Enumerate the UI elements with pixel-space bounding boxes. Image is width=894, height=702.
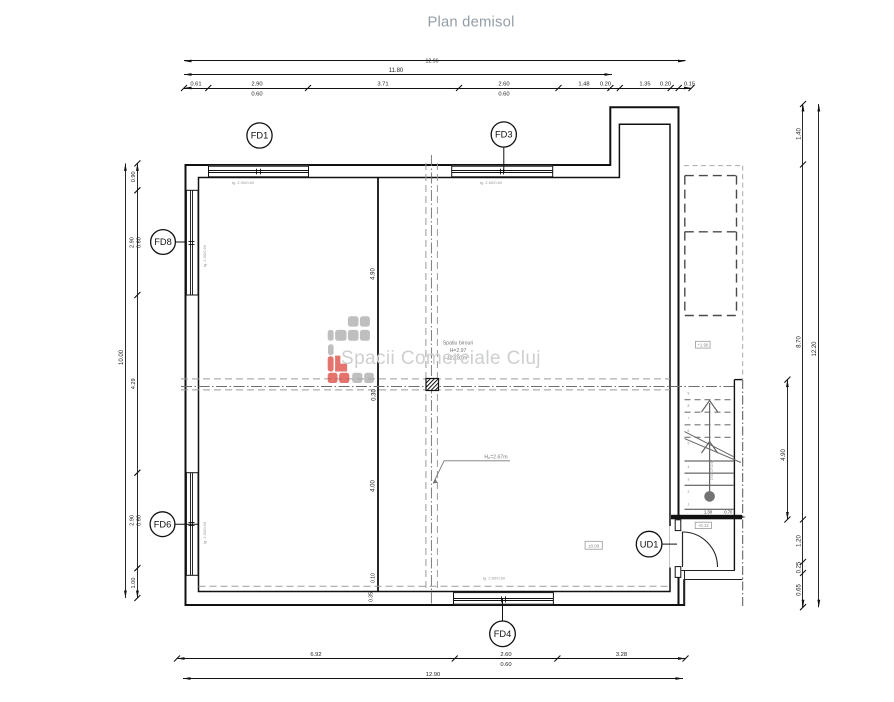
svg-text:tg. 2.60/0.60: tg. 2.60/0.60 [483,576,506,581]
svg-text:0.15: 0.15 [684,82,695,88]
svg-text:0.20: 0.20 [600,82,611,88]
svg-text:0.30: 0.30 [372,389,378,401]
svg-text:1.40: 1.40 [796,128,802,140]
svg-text:2.90: 2.90 [129,515,135,526]
svg-text:0.90: 0.90 [131,171,137,182]
svg-text:2.60: 2.60 [498,82,509,88]
svg-text:0.35: 0.35 [369,592,375,602]
svg-text:Hᵤ=2.67m: Hᵤ=2.67m [484,454,507,460]
svg-text:1.48: 1.48 [578,82,589,88]
svg-text:tg. 2.90/0.60: tg. 2.90/0.60 [202,244,207,267]
svg-text:0.60: 0.60 [500,662,511,668]
svg-text:9: 9 [688,392,690,396]
svg-text:0.60: 0.60 [137,515,143,526]
svg-text:1.00: 1.00 [131,578,137,589]
svg-text:2.90: 2.90 [129,237,135,248]
svg-text:tg. 2.60/0.60: tg. 2.60/0.60 [480,180,503,185]
svg-text:±0.00: ±0.00 [588,543,600,548]
svg-text:0.10: 0.10 [371,573,377,583]
svg-text:0.70: 0.70 [724,509,733,514]
svg-text:2: 2 [688,490,690,494]
svg-text:8: 8 [688,404,690,408]
svg-text:Plan demisol: Plan demisol [427,15,514,31]
svg-text:0.20: 0.20 [660,82,671,88]
svg-text:0.60: 0.60 [498,92,509,98]
svg-text:UD1: UD1 [640,539,659,549]
svg-text:1.30: 1.30 [704,509,713,514]
svg-text:2.60: 2.60 [500,652,511,658]
svg-text:2.90: 2.90 [251,82,262,88]
svg-text:0.25: 0.25 [796,561,802,573]
svg-text:1: 1 [688,503,690,507]
svg-text:tg. 2.90/0.60: tg. 2.90/0.60 [202,521,207,544]
svg-text:FD6: FD6 [154,519,172,529]
svg-text:1.35: 1.35 [639,82,650,88]
svg-text:5: 5 [688,442,690,446]
svg-text:6: 6 [688,429,690,433]
svg-text:4: 4 [688,465,690,469]
svg-text:4.00: 4.00 [371,480,377,492]
svg-text:4.29: 4.29 [131,378,137,389]
svg-text:6.92: 6.92 [310,652,321,658]
svg-text:0.61: 0.61 [190,82,201,88]
svg-text:3: 3 [688,478,690,482]
svg-text:1.20: 1.20 [796,535,802,547]
svg-text:+0.12: +0.12 [698,523,709,528]
svg-text:4.90: 4.90 [371,268,377,280]
svg-text:12.90: 12.90 [426,672,441,678]
svg-text:0.60: 0.60 [137,237,143,248]
svg-text:Spacii Comerciale Cluj: Spacii Comerciale Cluj [341,348,541,369]
svg-text:3.28: 3.28 [616,652,627,658]
svg-text:11.80: 11.80 [389,68,404,74]
svg-text:FD8: FD8 [154,237,172,247]
svg-text:7: 7 [688,417,690,421]
svg-text:FD3: FD3 [495,130,513,140]
svg-text:12.20: 12.20 [812,341,818,357]
svg-text:10.00: 10.00 [119,349,125,365]
svg-text:12.96: 12.96 [426,59,439,65]
svg-text:FD4: FD4 [494,629,512,639]
svg-text:3.71: 3.71 [377,82,388,88]
svg-text:Spatiu birouri: Spatiu birouri [443,341,474,347]
svg-text:8.70: 8.70 [796,336,802,348]
svg-text:tg. 2.90/0.60: tg. 2.90/0.60 [232,180,255,185]
svg-text:17x0.17=2.97: 17x0.17=2.97 [710,460,714,481]
svg-text:4.90: 4.90 [781,449,787,461]
svg-text:0.60: 0.60 [251,92,262,98]
svg-text:0.65: 0.65 [796,584,802,596]
svg-text:+1.90: +1.90 [697,342,708,347]
svg-text:FD1: FD1 [251,131,269,141]
